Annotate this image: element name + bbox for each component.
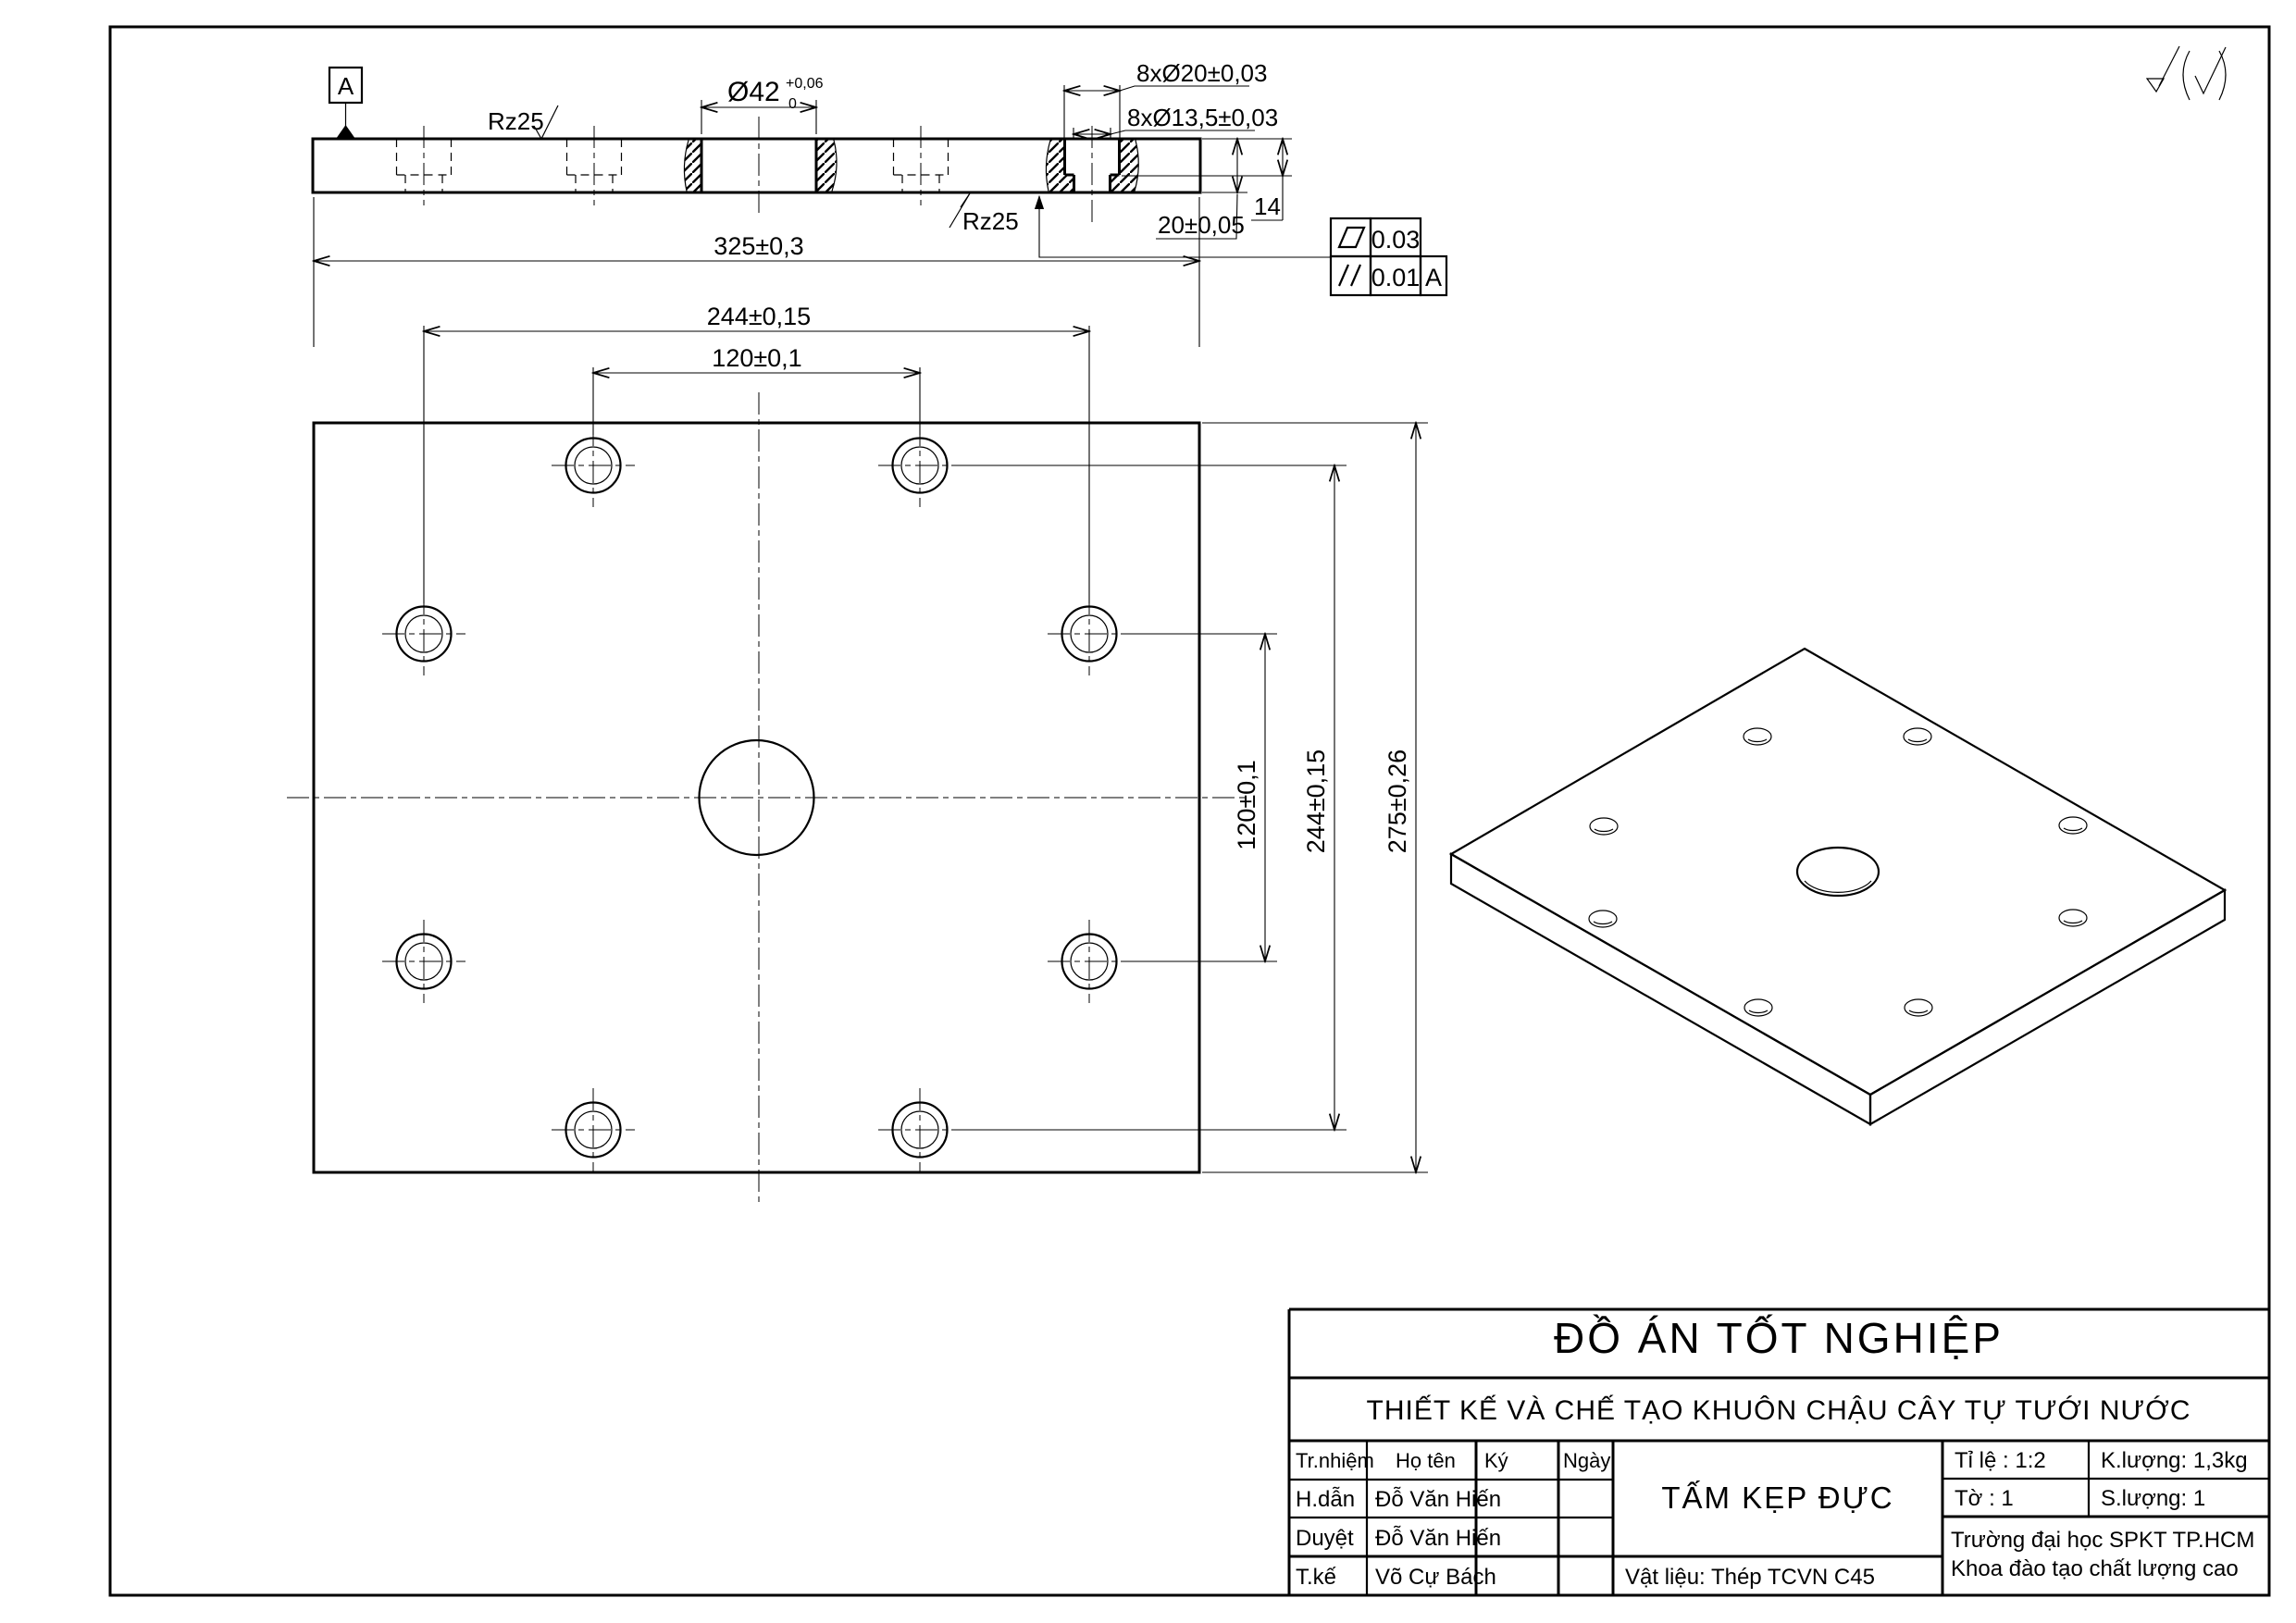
project-subtitle: THIẾT KẾ VÀ CHẾ TẠO KHUÔN CHẬU CÂY TỰ TƯ… — [1367, 1394, 2191, 1426]
col-role: Tr.nhiệm — [1296, 1449, 1374, 1472]
scale-label: Tỉ lệ : 1:2 — [1955, 1448, 2046, 1473]
col-date: Ngày — [1563, 1449, 1610, 1472]
dim-hole-cols: 120±0,1 — [593, 344, 920, 435]
roughness-bottom-label: Rz25 — [962, 207, 1019, 235]
dim-depth: 14 — [1122, 139, 1292, 220]
dim-center-dia-text: Ø42 — [727, 77, 780, 107]
material-label: Vật liệu: Thép TCVN C45 — [1625, 1565, 1875, 1590]
front-view: 325±0,3 244±0,15 120±0,1 120±0,1 244±0,1… — [287, 197, 1428, 1203]
part-name: TẤM KẸP ĐỰC — [1661, 1481, 1893, 1515]
feature-control-frames: 0.03 0.01 A — [1331, 218, 1446, 295]
surface-note — [2147, 46, 2226, 100]
dim-hole-rows-text: 120±0,1 — [1233, 760, 1260, 849]
org-line2: Khoa đào tạo chất lượng cao — [1951, 1556, 2239, 1581]
iso-view — [1451, 649, 2225, 1124]
drawing-sheet: A Rz25 Rz25 Ø42 +0,06 0 — [0, 0, 2296, 1623]
weight-label: K.lượng: 1,3kg — [2101, 1448, 2248, 1473]
dim-center-dia-tol-up: +0,06 — [786, 76, 824, 92]
surface-finish-icon — [2147, 46, 2179, 92]
row-name: Võ Cự Bách — [1375, 1565, 1496, 1590]
dim-thru: 8xØ13,5±0,03 — [1074, 104, 1278, 139]
roughness-top: Rz25 — [488, 105, 558, 139]
roughness-bottom: Rz25 — [949, 193, 1019, 235]
col-sign: Ký — [1484, 1449, 1508, 1472]
iso-center-hole — [1797, 848, 1879, 896]
parallelism-datum: A — [1425, 264, 1442, 291]
flatness-icon — [1339, 228, 1364, 247]
row-name: Đỗ Văn Hiến — [1375, 1487, 1501, 1512]
dim-depth-text: 14 — [1254, 192, 1281, 220]
row-role: T.kế — [1296, 1565, 1337, 1590]
sheet-label: Tờ : 1 — [1955, 1486, 2014, 1511]
center-hole-section — [684, 117, 837, 215]
iso-bolt-holes — [1589, 728, 2087, 1016]
dim-thru-text: 8xØ13,5±0,03 — [1127, 104, 1278, 131]
col-name: Họ tên — [1396, 1449, 1456, 1472]
dim-bolt-cols-text: 244±0,15 — [707, 303, 811, 330]
dim-thickness-text: 20±0,05 — [1158, 211, 1245, 239]
org-line1: Trường đại học SPKT TP.HCM — [1951, 1528, 2254, 1553]
row-role: Duyệt — [1296, 1526, 1354, 1551]
row-role: H.dẫn — [1296, 1487, 1355, 1512]
dim-width-text: 325±0,3 — [714, 232, 803, 260]
flatness-value: 0.03 — [1371, 226, 1421, 254]
dim-cbore-text: 8xØ20±0,03 — [1136, 59, 1267, 87]
dim-height-text: 275±0,26 — [1384, 750, 1411, 853]
project-title: ĐỒ ÁN TỐT NGHIỆP — [1554, 1314, 2004, 1362]
datum-triangle — [336, 125, 355, 139]
parallelism-value: 0.01 — [1371, 264, 1421, 291]
dim-center-dia-tol-dn: 0 — [788, 96, 797, 112]
title-block: ĐỒ ÁN TỐT NGHIỆP THIẾT KẾ VÀ CHẾ TẠO KHU… — [1289, 1309, 2269, 1595]
parallelism-icon — [1339, 265, 1360, 286]
roughness-top-label: Rz25 — [488, 107, 544, 135]
datum-label: A — [338, 72, 354, 100]
row-name: Đỗ Văn Hiến — [1375, 1526, 1501, 1551]
datum-flag: A — [329, 68, 362, 139]
dim-bolt-rows-text: 244±0,15 — [1302, 750, 1330, 853]
dim-hole-cols-text: 120±0,1 — [712, 344, 801, 372]
dim-center-dia: Ø42 +0,06 0 — [701, 76, 824, 134]
section-view: A Rz25 Rz25 Ø42 +0,06 0 — [313, 59, 1446, 295]
qty-label: S.lượng: 1 — [2101, 1486, 2205, 1511]
